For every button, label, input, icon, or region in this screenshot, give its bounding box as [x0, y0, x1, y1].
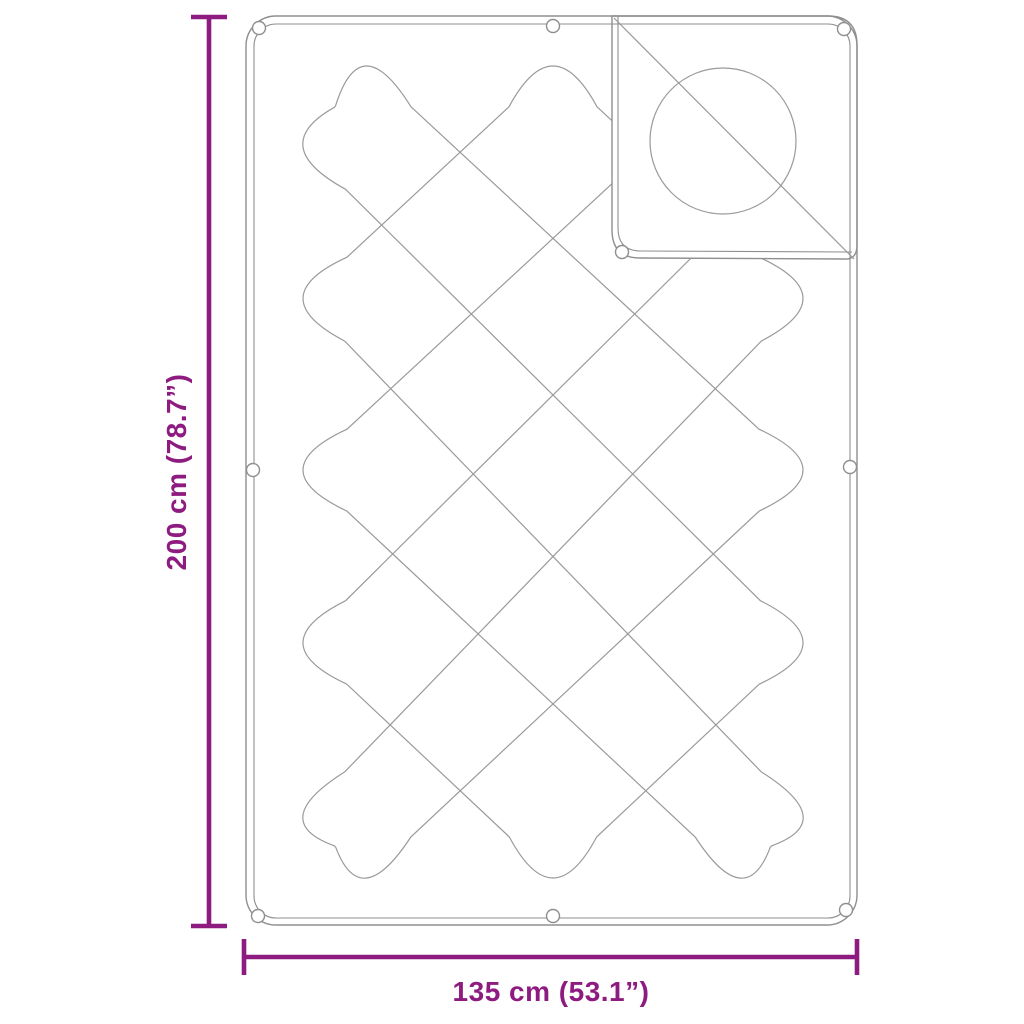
grommet-right-middle: [844, 461, 857, 474]
grommet-top-left: [253, 22, 266, 35]
diagram-canvas: 200 cm (78.7”) 135 cm (53.1”): [0, 0, 1024, 1024]
grommet-flap-top-right: [838, 23, 851, 36]
grommet-flap-bottom-left: [616, 246, 629, 259]
grommet-bottom-center: [547, 910, 560, 923]
corner-flap: [612, 16, 857, 259]
width-dimension: 135 cm (53.1”): [244, 939, 857, 1007]
height-dimension: 200 cm (78.7”): [161, 17, 227, 926]
grommet-top-center: [547, 20, 560, 33]
width-dimension-label: 135 cm (53.1”): [453, 976, 650, 1007]
grommet-left-middle: [247, 464, 260, 477]
height-dimension-label: 200 cm (78.7”): [161, 374, 192, 571]
blanket-dimension-diagram: 200 cm (78.7”) 135 cm (53.1”): [0, 0, 1024, 1024]
grommet-bottom-left: [252, 910, 265, 923]
grommet-bottom-right: [840, 904, 853, 917]
